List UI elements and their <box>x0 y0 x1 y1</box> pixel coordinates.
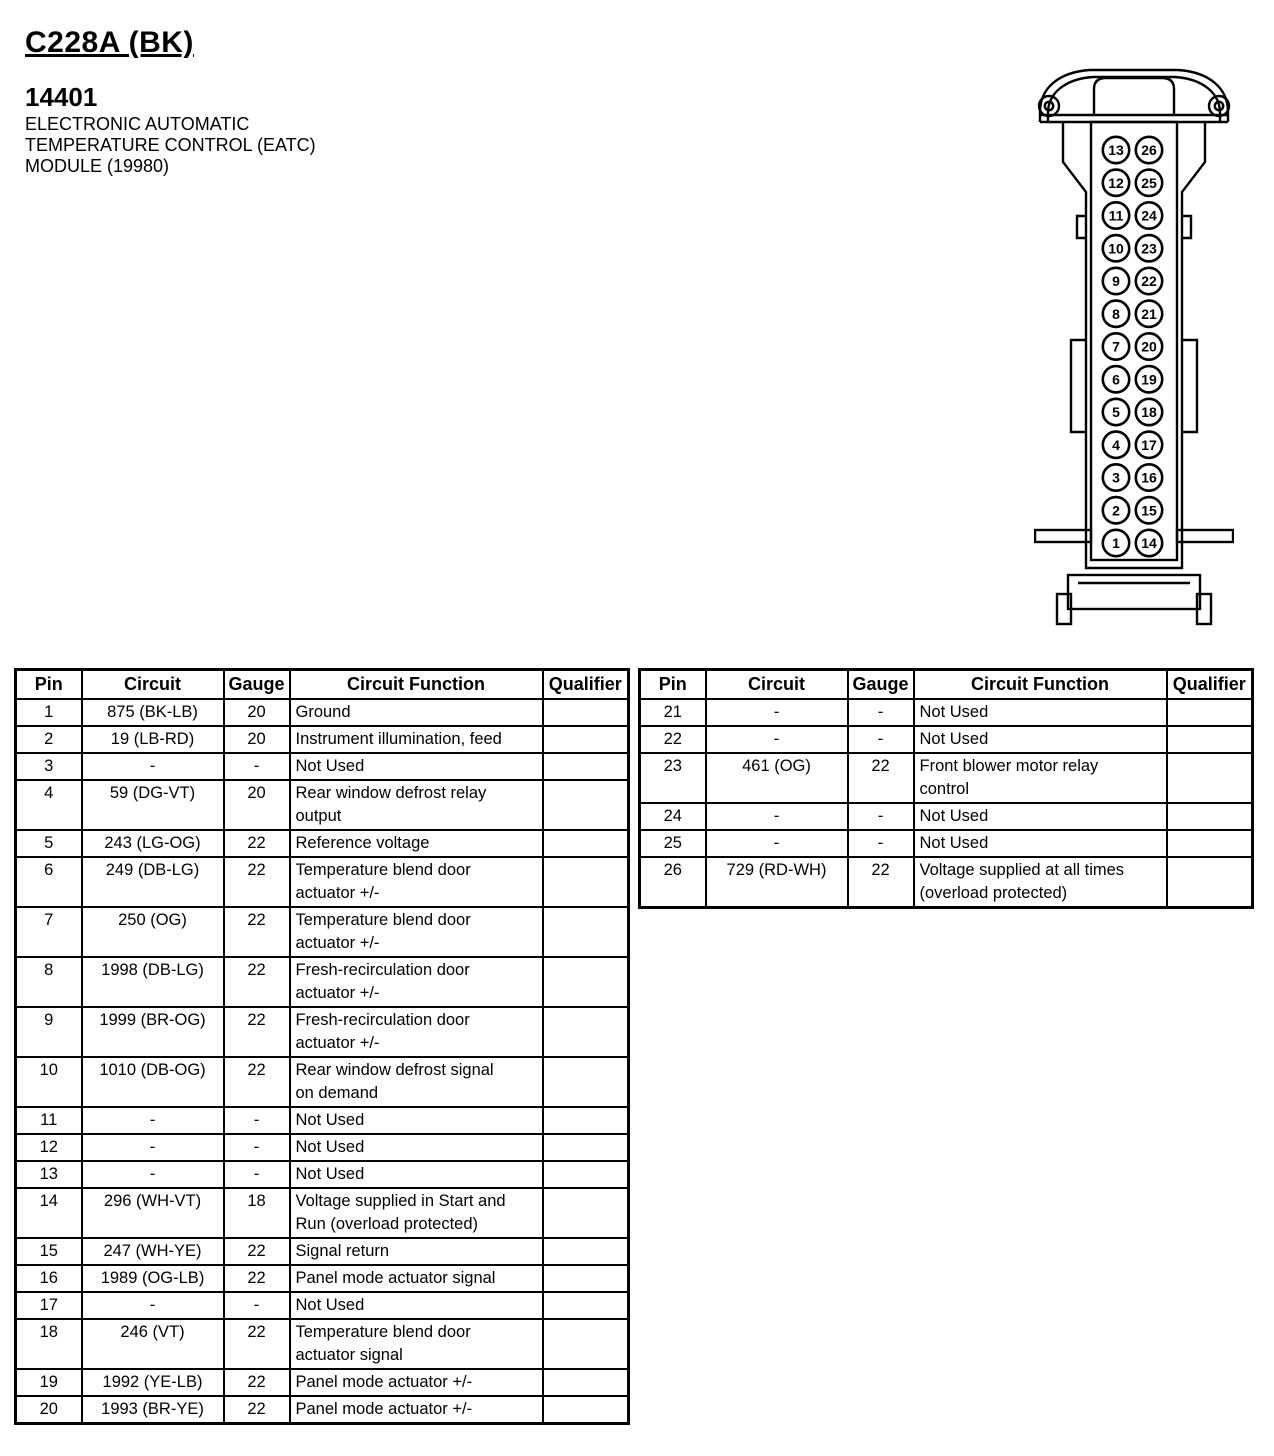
gauge-cell: - <box>224 1292 290 1319</box>
table-row-pin-7: 7250 (OG)22Temperature blend door actuat… <box>16 907 629 957</box>
qualifier-cell <box>543 1238 629 1265</box>
qualifier-cell <box>1167 830 1253 857</box>
qualifier-cell <box>543 1396 629 1424</box>
gauge-cell: 22 <box>224 1007 290 1057</box>
qualifier-cell <box>543 857 629 907</box>
circuit-cell: 1998 (DB-LG) <box>82 957 224 1007</box>
table-row-pin-6: 6249 (DB-LG)22Temperature blend door act… <box>16 857 629 907</box>
connector-face-diagram: 1312111098765432126252423222120191817161… <box>1034 58 1234 630</box>
table-row-pin-17: 17--Not Used <box>16 1292 629 1319</box>
pin-19-label: 19 <box>1141 371 1157 387</box>
column-header-pin: Pin <box>16 670 82 700</box>
table-row-pin-13: 13--Not Used <box>16 1161 629 1188</box>
pin-cell: 21 <box>640 699 706 726</box>
circuit-cell: 250 (OG) <box>82 907 224 957</box>
pin-cell: 16 <box>16 1265 82 1292</box>
column-header-gauge: Gauge <box>848 670 914 700</box>
qualifier-cell <box>1167 857 1253 908</box>
gauge-cell: 22 <box>224 1319 290 1369</box>
table-row-pin-24: 24--Not Used <box>640 803 1253 830</box>
pinout-table-pins-1-20: PinCircuitGaugeCircuit FunctionQualifier… <box>14 668 630 1425</box>
qualifier-cell <box>543 957 629 1007</box>
function-cell: Panel mode actuator +/- <box>290 1369 543 1396</box>
pin-23-label: 23 <box>1141 240 1157 256</box>
table-row-pin-15: 15247 (WH-YE)22Signal return <box>16 1238 629 1265</box>
table-row-pin-16: 161989 (OG-LB)22Panel mode actuator sign… <box>16 1265 629 1292</box>
column-header-qualifier: Qualifier <box>1167 670 1253 700</box>
module-description-line: MODULE (19980) <box>25 156 316 177</box>
gauge-cell: - <box>224 753 290 780</box>
function-cell: Voltage supplied in Start and Run (overl… <box>290 1188 543 1238</box>
qualifier-cell <box>1167 699 1253 726</box>
circuit-cell: - <box>706 803 848 830</box>
pin-cell: 15 <box>16 1238 82 1265</box>
pin-6-label: 6 <box>1112 371 1120 387</box>
column-header-circuit-function: Circuit Function <box>914 670 1167 700</box>
function-cell: Rear window defrost relay output <box>290 780 543 830</box>
pin-cell: 5 <box>16 830 82 857</box>
function-cell: Signal return <box>290 1238 543 1265</box>
circuit-cell: 1992 (YE-LB) <box>82 1369 224 1396</box>
gauge-cell: - <box>224 1134 290 1161</box>
gauge-cell: 22 <box>224 857 290 907</box>
pin-cell: 4 <box>16 780 82 830</box>
circuit-cell: 247 (WH-YE) <box>82 1238 224 1265</box>
column-header-circuit: Circuit <box>82 670 224 700</box>
pin-cell: 2 <box>16 726 82 753</box>
pin-20-label: 20 <box>1141 339 1157 355</box>
pin-10-label: 10 <box>1108 240 1124 256</box>
column-header-qualifier: Qualifier <box>543 670 629 700</box>
circuit-cell: 249 (DB-LG) <box>82 857 224 907</box>
qualifier-cell <box>543 1057 629 1107</box>
function-cell: Not Used <box>290 1292 543 1319</box>
function-cell: Ground <box>290 699 543 726</box>
pin-cell: 19 <box>16 1369 82 1396</box>
module-description-line: ELECTRONIC AUTOMATIC <box>25 114 316 135</box>
pin-cell: 14 <box>16 1188 82 1238</box>
table-row-pin-9: 91999 (BR-OG)22Fresh-recirculation door … <box>16 1007 629 1057</box>
pin-cell: 3 <box>16 753 82 780</box>
pin-1-label: 1 <box>1112 535 1120 551</box>
pin-25-label: 25 <box>1141 175 1157 191</box>
qualifier-cell <box>543 1161 629 1188</box>
function-cell: Temperature blend door actuator +/- <box>290 907 543 957</box>
function-cell: Panel mode actuator signal <box>290 1265 543 1292</box>
function-cell: Not Used <box>914 830 1167 857</box>
qualifier-cell <box>543 1319 629 1369</box>
function-cell: Not Used <box>914 726 1167 753</box>
gauge-cell: 22 <box>224 1265 290 1292</box>
gauge-cell: 22 <box>848 753 914 803</box>
gauge-cell: - <box>224 1107 290 1134</box>
pin-11-label: 11 <box>1109 208 1124 224</box>
pin-5-label: 5 <box>1112 404 1120 420</box>
circuit-cell: - <box>82 1292 224 1319</box>
pin-cell: 13 <box>16 1161 82 1188</box>
qualifier-cell <box>543 1292 629 1319</box>
pin-9-label: 9 <box>1112 273 1120 289</box>
pin-cell: 20 <box>16 1396 82 1424</box>
pin-4-label: 4 <box>1112 437 1120 453</box>
pin-13-label: 13 <box>1108 142 1124 158</box>
gauge-cell: 22 <box>224 1057 290 1107</box>
circuit-cell: 1999 (BR-OG) <box>82 1007 224 1057</box>
pin-cell: 17 <box>16 1292 82 1319</box>
function-cell: Temperature blend door actuator +/- <box>290 857 543 907</box>
function-cell: Not Used <box>290 1161 543 1188</box>
table-row-pin-8: 81998 (DB-LG)22Fresh-recirculation door … <box>16 957 629 1007</box>
pin-14-label: 14 <box>1141 535 1157 551</box>
connector-pins: 1312111098765432126252423222120191817161… <box>1103 137 1162 556</box>
qualifier-cell <box>1167 753 1253 803</box>
circuit-cell: - <box>82 753 224 780</box>
qualifier-cell <box>543 780 629 830</box>
pin-cell: 10 <box>16 1057 82 1107</box>
column-header-pin: Pin <box>640 670 706 700</box>
connector-shell-outline <box>1035 70 1233 624</box>
gauge-cell: 22 <box>224 1396 290 1424</box>
pinout-table-pins-21-26: PinCircuitGaugeCircuit FunctionQualifier… <box>638 668 1254 909</box>
circuit-cell: - <box>706 726 848 753</box>
pin-7-label: 7 <box>1112 339 1120 355</box>
pin-cell: 8 <box>16 957 82 1007</box>
circuit-cell: 461 (OG) <box>706 753 848 803</box>
gauge-cell: 18 <box>224 1188 290 1238</box>
function-cell: Temperature blend door actuator signal <box>290 1319 543 1369</box>
gauge-cell: 22 <box>224 1238 290 1265</box>
gauge-cell: 22 <box>224 1369 290 1396</box>
function-cell: Fresh-recirculation door actuator +/- <box>290 1007 543 1057</box>
qualifier-cell <box>543 1107 629 1134</box>
circuit-cell: 729 (RD-WH) <box>706 857 848 908</box>
table-row-pin-5: 5243 (LG-OG)22Reference voltage <box>16 830 629 857</box>
table-row-pin-20: 201993 (BR-YE)22Panel mode actuator +/- <box>16 1396 629 1424</box>
gauge-cell: 20 <box>224 726 290 753</box>
qualifier-cell <box>543 1188 629 1238</box>
table-row-pin-25: 25--Not Used <box>640 830 1253 857</box>
gauge-cell: - <box>224 1161 290 1188</box>
qualifier-cell <box>543 699 629 726</box>
gauge-cell: 20 <box>224 699 290 726</box>
pin-cell: 24 <box>640 803 706 830</box>
column-header-circuit: Circuit <box>706 670 848 700</box>
column-header-circuit-function: Circuit Function <box>290 670 543 700</box>
circuit-cell: 19 (LB-RD) <box>82 726 224 753</box>
scanned-wiring-diagram-page: C228A (BK) 14401 ELECTRONIC AUTOMATIC TE… <box>0 0 1274 1456</box>
circuit-cell: - <box>82 1161 224 1188</box>
circuit-cell: 1010 (DB-OG) <box>82 1057 224 1107</box>
pin-3-label: 3 <box>1112 470 1120 486</box>
table-row-pin-19: 191992 (YE-LB)22Panel mode actuator +/- <box>16 1369 629 1396</box>
function-cell: Voltage supplied at all times (overload … <box>914 857 1167 908</box>
circuit-cell: - <box>706 699 848 726</box>
qualifier-cell <box>543 830 629 857</box>
table-row-pin-14: 14296 (WH-VT)18Voltage supplied in Start… <box>16 1188 629 1238</box>
table-row-pin-18: 18246 (VT)22Temperature blend door actua… <box>16 1319 629 1369</box>
pin-cell: 1 <box>16 699 82 726</box>
qualifier-cell <box>543 1134 629 1161</box>
pin-cell: 9 <box>16 1007 82 1057</box>
circuit-cell: 1989 (OG-LB) <box>82 1265 224 1292</box>
connector-id-title: C228A (BK) <box>25 26 194 60</box>
table-row-pin-2: 219 (LB-RD)20Instrument illumination, fe… <box>16 726 629 753</box>
qualifier-cell <box>1167 726 1253 753</box>
pin-22-label: 22 <box>1141 273 1157 289</box>
pin-cell: 26 <box>640 857 706 908</box>
pin-18-label: 18 <box>1141 404 1157 420</box>
function-cell: Panel mode actuator +/- <box>290 1396 543 1424</box>
pin-2-label: 2 <box>1112 502 1120 518</box>
table-row-pin-4: 459 (DG-VT)20Rear window defrost relay o… <box>16 780 629 830</box>
pin-26-label: 26 <box>1141 142 1157 158</box>
circuit-cell: 1993 (BR-YE) <box>82 1396 224 1424</box>
qualifier-cell <box>543 726 629 753</box>
gauge-cell: - <box>848 803 914 830</box>
pin-8-label: 8 <box>1112 306 1120 322</box>
table-row-pin-22: 22--Not Used <box>640 726 1253 753</box>
table-row-pin-1: 1875 (BK-LB)20Ground <box>16 699 629 726</box>
table-row-pin-26: 26729 (RD-WH)22Voltage supplied at all t… <box>640 857 1253 908</box>
pin-15-label: 15 <box>1141 502 1157 518</box>
pin-cell: 25 <box>640 830 706 857</box>
pin-cell: 6 <box>16 857 82 907</box>
function-cell: Reference voltage <box>290 830 543 857</box>
circuit-cell: - <box>82 1134 224 1161</box>
pin-cell: 18 <box>16 1319 82 1369</box>
function-cell: Fresh-recirculation door actuator +/- <box>290 957 543 1007</box>
pin-cell: 12 <box>16 1134 82 1161</box>
circuit-cell: 243 (LG-OG) <box>82 830 224 857</box>
pin-cell: 23 <box>640 753 706 803</box>
qualifier-cell <box>543 1265 629 1292</box>
pin-24-label: 24 <box>1141 208 1157 224</box>
pin-17-label: 17 <box>1141 437 1157 453</box>
function-cell: Not Used <box>914 699 1167 726</box>
qualifier-cell <box>543 1369 629 1396</box>
gauge-cell: 22 <box>848 857 914 908</box>
gauge-cell: 22 <box>224 957 290 1007</box>
circuit-cell: - <box>82 1107 224 1134</box>
gauge-cell: 22 <box>224 830 290 857</box>
qualifier-cell <box>543 753 629 780</box>
function-cell: Not Used <box>290 1134 543 1161</box>
table-row-pin-11: 11--Not Used <box>16 1107 629 1134</box>
table-header-row: PinCircuitGaugeCircuit FunctionQualifier <box>16 670 629 700</box>
pin-cell: 7 <box>16 907 82 957</box>
gauge-cell: - <box>848 830 914 857</box>
table-row-pin-23: 23461 (OG)22Front blower motor relay con… <box>640 753 1253 803</box>
qualifier-cell <box>1167 803 1253 830</box>
pin-16-label: 16 <box>1141 470 1157 486</box>
pin-cell: 11 <box>16 1107 82 1134</box>
function-cell: Rear window defrost signal on demand <box>290 1057 543 1107</box>
module-description: ELECTRONIC AUTOMATIC TEMPERATURE CONTROL… <box>25 114 316 177</box>
table-row-pin-12: 12--Not Used <box>16 1134 629 1161</box>
qualifier-cell <box>543 1007 629 1057</box>
part-number: 14401 <box>25 82 97 113</box>
function-cell: Instrument illumination, feed <box>290 726 543 753</box>
function-cell: Not Used <box>914 803 1167 830</box>
pin-cell: 22 <box>640 726 706 753</box>
function-cell: Not Used <box>290 753 543 780</box>
circuit-cell: - <box>706 830 848 857</box>
gauge-cell: - <box>848 726 914 753</box>
function-cell: Front blower motor relay control <box>914 753 1167 803</box>
gauge-cell: - <box>848 699 914 726</box>
module-description-line: TEMPERATURE CONTROL (EATC) <box>25 135 316 156</box>
function-cell: Not Used <box>290 1107 543 1134</box>
gauge-cell: 22 <box>224 907 290 957</box>
column-header-gauge: Gauge <box>224 670 290 700</box>
pin-12-label: 12 <box>1108 175 1124 191</box>
qualifier-cell <box>543 907 629 957</box>
table-row-pin-3: 3--Not Used <box>16 753 629 780</box>
table-row-pin-21: 21--Not Used <box>640 699 1253 726</box>
circuit-cell: 246 (VT) <box>82 1319 224 1369</box>
circuit-cell: 59 (DG-VT) <box>82 780 224 830</box>
pin-21-label: 21 <box>1141 306 1157 322</box>
gauge-cell: 20 <box>224 780 290 830</box>
circuit-cell: 296 (WH-VT) <box>82 1188 224 1238</box>
table-header-row: PinCircuitGaugeCircuit FunctionQualifier <box>640 670 1253 700</box>
table-row-pin-10: 101010 (DB-OG)22Rear window defrost sign… <box>16 1057 629 1107</box>
circuit-cell: 875 (BK-LB) <box>82 699 224 726</box>
